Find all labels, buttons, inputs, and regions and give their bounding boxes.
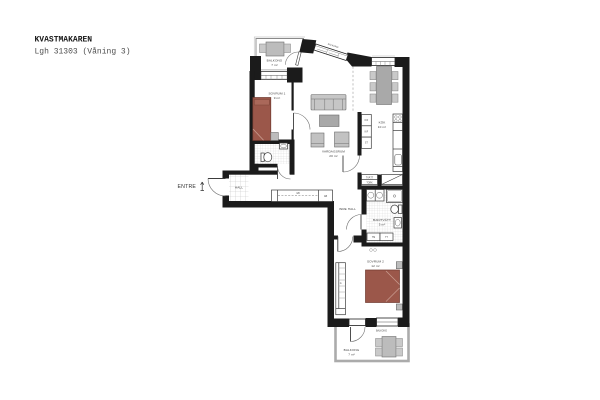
svg-text:7 m²: 7 m² bbox=[348, 352, 355, 356]
svg-text:TM: TM bbox=[372, 237, 375, 239]
svg-text:GB: GB bbox=[324, 196, 328, 198]
svg-text:5 m²: 5 m² bbox=[379, 222, 386, 226]
svg-text:TVÄTT: TVÄTT bbox=[366, 176, 374, 179]
svg-text:9 m²: 9 m² bbox=[274, 96, 281, 100]
svg-text:GB: GB bbox=[296, 193, 300, 195]
svg-text:K/F: K/F bbox=[365, 120, 369, 122]
svg-text:BALKONG: BALKONG bbox=[376, 330, 387, 333]
svg-text:HALL: HALL bbox=[235, 186, 243, 190]
svg-text:INRE HALL: INRE HALL bbox=[339, 207, 356, 211]
svg-text:K/F: K/F bbox=[365, 131, 369, 133]
svg-text:7 m²: 7 m² bbox=[271, 63, 278, 67]
svg-text:20 m²: 20 m² bbox=[329, 154, 337, 158]
svg-text:Lgh 31303 (Våning 3): Lgh 31303 (Våning 3) bbox=[35, 48, 131, 57]
svg-text:G: G bbox=[340, 283, 342, 285]
svg-text:10 m²: 10 m² bbox=[378, 125, 386, 129]
svg-text:ENTRE: ENTRE bbox=[178, 184, 197, 190]
svg-text:12 m²: 12 m² bbox=[371, 264, 379, 268]
svg-text:TORK: TORK bbox=[366, 182, 373, 184]
svg-text:KVASTMAKAREN: KVASTMAKAREN bbox=[35, 36, 93, 45]
